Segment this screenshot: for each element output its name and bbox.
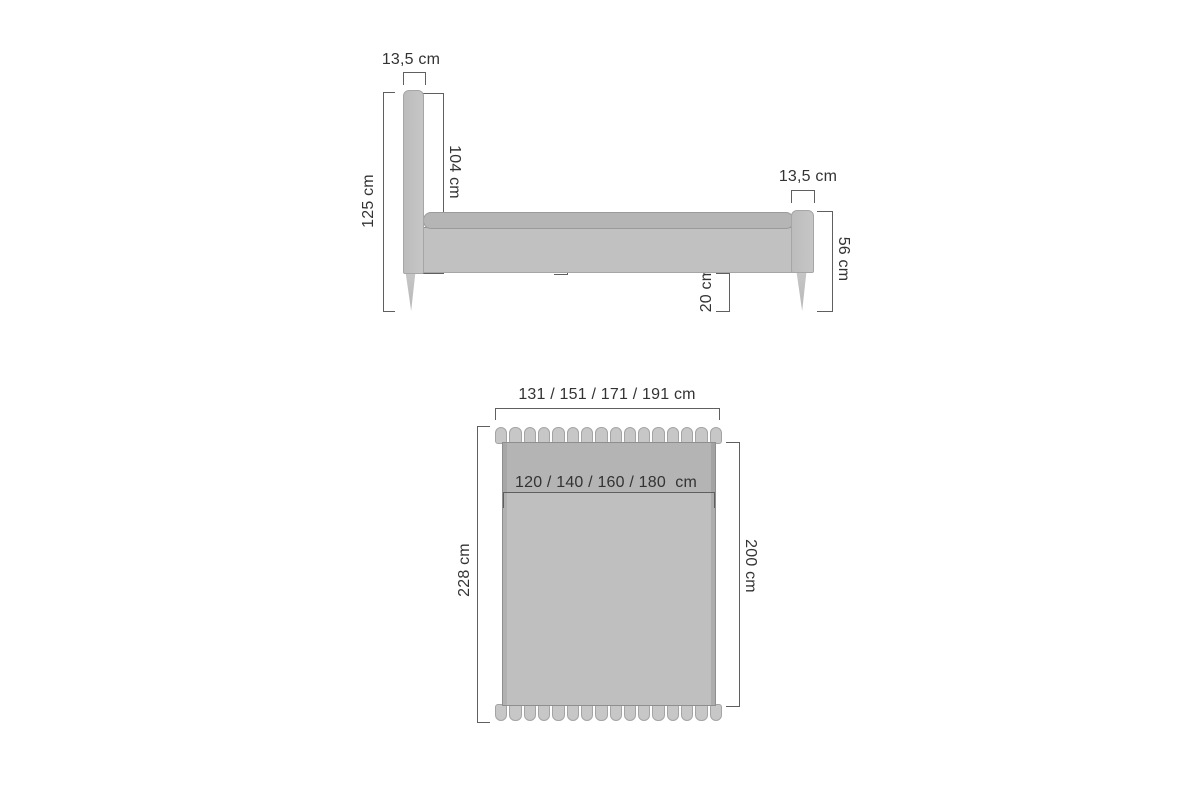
footboard-slat: [538, 704, 550, 721]
footboard-slat: [667, 704, 679, 721]
footboard-slat: [610, 704, 622, 721]
dim-label-floor-clearance: 20 cm: [699, 268, 715, 313]
dim-bracket-mattress-width: [503, 492, 715, 508]
footboard-slat-row: [495, 704, 722, 721]
dim-label-footboard-thickness: 13,5 cm: [779, 169, 837, 185]
dim-label-overall-length: 228 cm: [457, 543, 473, 597]
footboard-slat: [524, 704, 536, 721]
dim-label-overall-width: 131 / 151 / 171 / 191 cm: [518, 387, 695, 403]
footboard-slat: [681, 704, 693, 721]
bed-dimensions-diagram: 13,5 cm 125 cm 104 cm 26 cm 20 cm 13,5 c…: [0, 0, 1200, 800]
footboard-slat: [552, 704, 564, 721]
footboard-slat: [695, 704, 707, 721]
dim-bracket-headboard-thickness: [403, 72, 426, 85]
footboard-slat: [652, 704, 664, 721]
dim-label-headboard-thickness: 13,5 cm: [382, 52, 440, 68]
dim-bracket-total-height: [383, 92, 395, 312]
footboard-side-panel: [791, 210, 814, 273]
footboard-slat: [710, 704, 722, 721]
dim-label-total-height: 125 cm: [361, 174, 377, 228]
dim-label-mattress-width: 120 / 140 / 160 / 180 cm: [515, 475, 697, 491]
dim-label-footboard-height: 56 cm: [835, 237, 851, 282]
footboard-slat: [638, 704, 650, 721]
footboard-leg: [796, 273, 807, 311]
dim-bracket-mattress-length: [726, 442, 740, 707]
mattress-edge: [423, 212, 794, 229]
footboard-slat: [495, 704, 507, 721]
side-rail: [423, 227, 794, 273]
footboard-slat: [567, 704, 579, 721]
footboard-slat: [581, 704, 593, 721]
footboard-slat: [509, 704, 521, 721]
headboard-leg: [405, 273, 416, 311]
dim-bracket-floor-clearance: [716, 273, 730, 312]
dim-label-mattress-length: 200 cm: [742, 539, 758, 593]
headboard-side-panel: [403, 90, 424, 274]
footboard-slat: [624, 704, 636, 721]
dim-bracket-footboard-height: [817, 211, 833, 312]
dim-label-headboard-panel-height: 104 cm: [446, 145, 462, 199]
dim-bracket-overall-length: [477, 426, 490, 723]
dim-bracket-footboard-thickness: [791, 190, 815, 203]
footboard-slat: [595, 704, 607, 721]
dim-bracket-overall-width: [495, 408, 720, 420]
